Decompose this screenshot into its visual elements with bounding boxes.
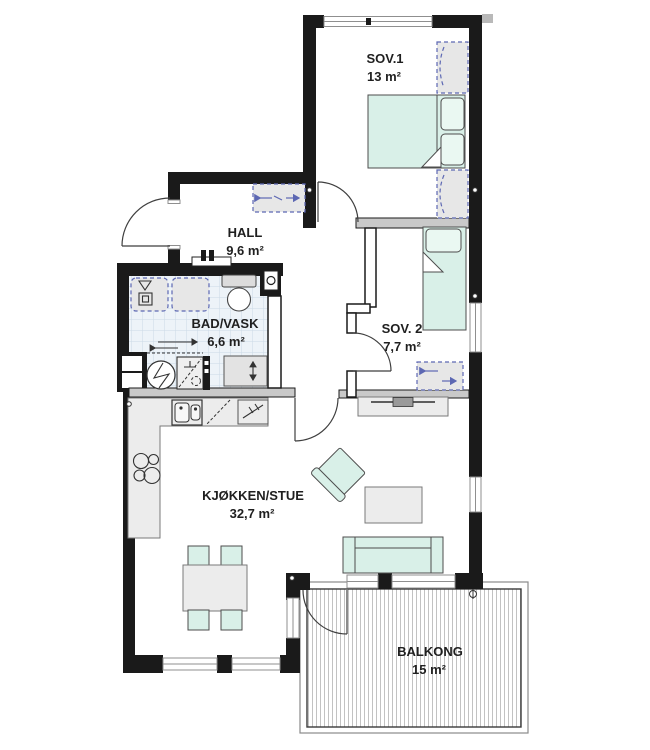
kitchen-sink bbox=[172, 400, 202, 425]
label-hall-name: HALL bbox=[228, 225, 263, 240]
tv-icon bbox=[393, 398, 413, 407]
wall-balcony-east-corner bbox=[455, 573, 483, 589]
wall-bath-kitchen bbox=[129, 388, 295, 397]
dining-chair bbox=[188, 610, 209, 630]
vanity-unit-right bbox=[172, 278, 209, 311]
label-balcony-area: 15 m² bbox=[412, 662, 447, 677]
window-living-south-right bbox=[232, 658, 280, 670]
wardrobe-sov1-top bbox=[437, 42, 468, 93]
single-bed-pillow bbox=[426, 229, 461, 252]
wall-sov2-west-upper bbox=[365, 228, 376, 307]
plumbing-dot-1 bbox=[205, 361, 209, 365]
armchair bbox=[310, 445, 367, 502]
wall-sov2-west-mid bbox=[347, 313, 356, 333]
dining-table bbox=[183, 565, 247, 611]
shaft-niche-top bbox=[122, 356, 142, 371]
label-balcony-name: BALKONG bbox=[397, 644, 463, 659]
dining-chair bbox=[221, 546, 242, 566]
window-living-south-left bbox=[163, 658, 217, 670]
dining-chair bbox=[188, 546, 209, 566]
wardrobe-sov2 bbox=[417, 362, 463, 390]
plumbing-dot-2 bbox=[205, 369, 209, 373]
label-bath-name: BAD/VASK bbox=[192, 316, 260, 331]
bed-pillow-1 bbox=[441, 98, 464, 130]
wall-sov2-jog bbox=[347, 304, 370, 313]
wardrobe-sov1-bottom bbox=[437, 170, 468, 218]
window-balcony-side bbox=[287, 598, 299, 638]
dining-chair bbox=[221, 610, 242, 630]
wall-se-lower bbox=[286, 638, 300, 673]
label-sov1-area: 13 m² bbox=[367, 69, 402, 84]
label-kitchen-area: 32,7 m² bbox=[230, 506, 275, 521]
wall-bath-west bbox=[117, 263, 129, 355]
entry-door bbox=[122, 198, 170, 246]
wall-sov2-west-lower bbox=[347, 371, 356, 397]
bed-pillow-2 bbox=[441, 134, 464, 165]
wall-hall-north bbox=[168, 172, 316, 184]
wall-east-middle bbox=[469, 352, 482, 477]
sofa bbox=[343, 537, 443, 573]
label-bath-area: 6,6 m² bbox=[207, 334, 245, 349]
hall-wardrobe bbox=[253, 184, 305, 212]
floor-plan: SOV.1 13 m² HALL 9,6 m² BAD/VASK 6,6 m² … bbox=[0, 0, 650, 750]
label-sov1-name: SOV.1 bbox=[366, 51, 403, 66]
coffee-table bbox=[365, 487, 422, 523]
wall-south-corner-west bbox=[123, 655, 163, 673]
label-sov2-name: SOV. 2 bbox=[382, 321, 423, 336]
window-balcony-wall-right bbox=[392, 575, 455, 588]
entry-door-jamb-top bbox=[168, 200, 180, 204]
bath-sliding-door bbox=[192, 250, 231, 266]
window-balcony-wall-left bbox=[347, 575, 378, 588]
window-living-east bbox=[470, 477, 481, 512]
bath-bench bbox=[224, 356, 267, 386]
door-sov1 bbox=[318, 182, 358, 222]
wall-balcony-pier bbox=[378, 573, 392, 589]
sov2-furniture bbox=[417, 227, 466, 390]
window-sov1-north bbox=[324, 17, 432, 27]
tv-bench bbox=[358, 397, 448, 416]
wall-bath-east bbox=[268, 296, 281, 388]
door-living bbox=[295, 398, 338, 441]
label-hall-area: 9,6 m² bbox=[226, 243, 264, 258]
dining-set bbox=[183, 546, 247, 630]
vent-shaft-icon bbox=[267, 277, 275, 285]
roof-stub bbox=[482, 14, 493, 23]
wall-sov1-north-left bbox=[303, 15, 324, 28]
window-sov2-east bbox=[470, 303, 481, 352]
label-kitchen-name: KJØKKEN/STUE bbox=[202, 488, 304, 503]
hood-unit bbox=[238, 400, 268, 424]
label-sov2-area: 7,7 m² bbox=[383, 339, 421, 354]
wall-south-pier bbox=[217, 655, 232, 673]
wall-east-upper bbox=[469, 15, 482, 303]
shaft-niche-bottom bbox=[122, 373, 142, 388]
